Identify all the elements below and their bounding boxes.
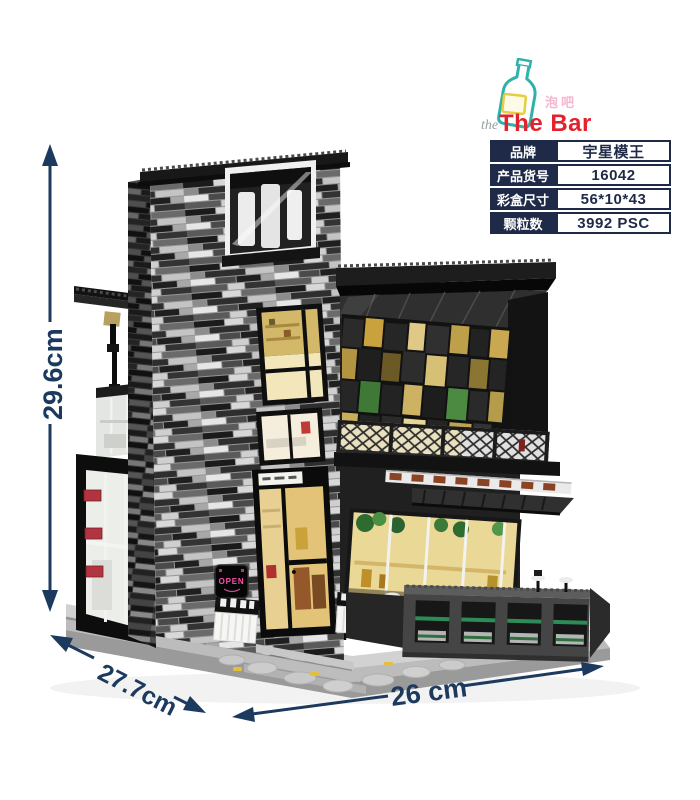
spec-row: 品牌 宇星模王 bbox=[490, 140, 671, 162]
display-window bbox=[222, 160, 320, 267]
brand-name-chinese: 泡吧 bbox=[545, 92, 577, 111]
spec-label: 产品货号 bbox=[490, 164, 556, 186]
window-second-floor bbox=[256, 303, 329, 405]
logo: 泡吧 the The Bar bbox=[483, 58, 683, 143]
window-first-floor bbox=[256, 407, 326, 465]
spec-row: 产品货号 16042 bbox=[490, 164, 671, 186]
spec-table: 品牌 宇星模王 产品货号 16042 彩盒尺寸 56*10*43 颗粒数 399… bbox=[490, 140, 671, 236]
page-root: OPEN bbox=[0, 0, 700, 800]
spec-value: 16042 bbox=[556, 164, 671, 186]
right-wing bbox=[333, 260, 574, 609]
spec-value: 56*10*43 bbox=[556, 188, 671, 210]
dimension-arrow-height: 29.6cm bbox=[38, 144, 68, 612]
spec-value: 宇星模王 bbox=[556, 140, 671, 162]
entrance-door bbox=[252, 466, 337, 638]
mosaic-window-wall bbox=[333, 310, 515, 438]
flourish-script: the bbox=[481, 118, 498, 134]
spec-label: 颗粒数 bbox=[490, 212, 556, 234]
spec-row: 彩盒尺寸 56*10*43 bbox=[490, 188, 671, 210]
spec-row: 颗粒数 3992 PSC bbox=[490, 212, 671, 234]
spec-value: 3992 PSC bbox=[556, 212, 671, 234]
open-sign: OPEN bbox=[215, 565, 248, 598]
bottle-crate bbox=[212, 597, 259, 643]
open-sign-text: OPEN bbox=[219, 577, 245, 586]
height-label: 29.6cm bbox=[38, 328, 68, 420]
spec-label: 品牌 bbox=[490, 140, 556, 162]
flat-roof bbox=[336, 260, 556, 296]
spec-label: 彩盒尺寸 bbox=[490, 188, 556, 210]
patio-fence bbox=[346, 585, 610, 662]
brand-name: The Bar bbox=[499, 110, 592, 138]
